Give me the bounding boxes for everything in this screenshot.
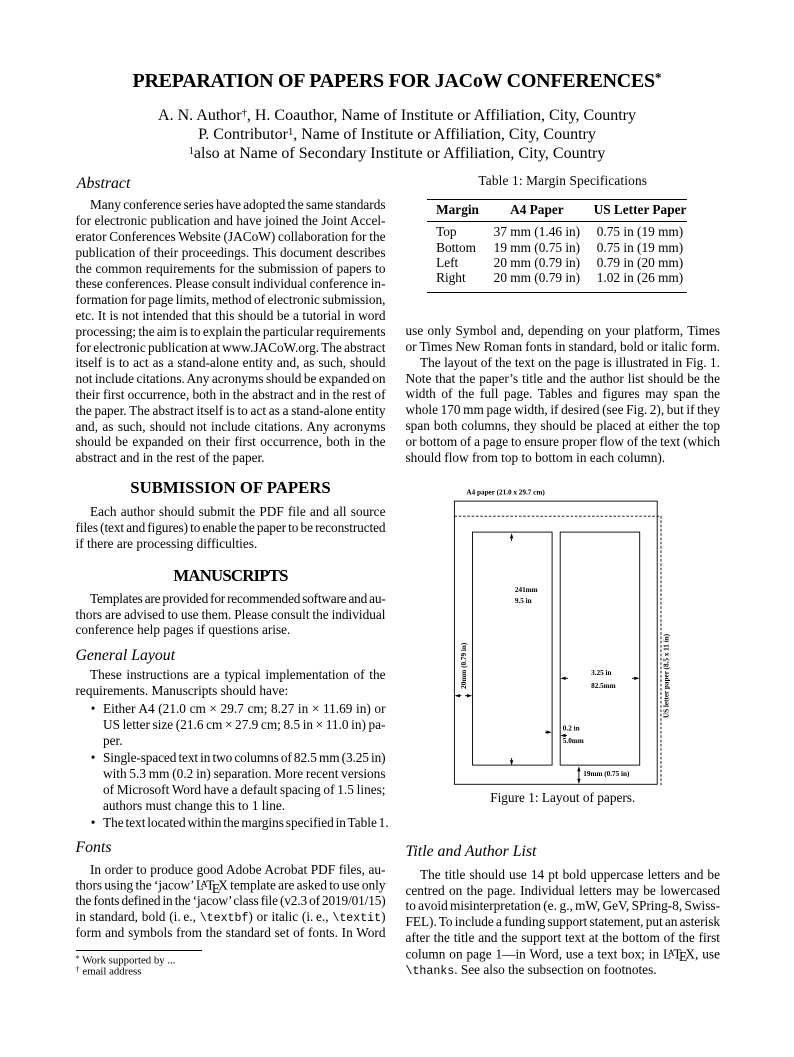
svg-text:82.5mm: 82.5mm (591, 682, 616, 690)
svg-text:19mm (0.75 in): 19mm (0.75 in) (583, 770, 630, 778)
svg-text:241mm: 241mm (515, 586, 538, 594)
svg-text:20mm (0.79 in): 20mm (0.79 in) (460, 642, 468, 689)
svg-text:0.2 in: 0.2 in (563, 724, 580, 732)
svg-text:9.5 in: 9.5 in (515, 597, 532, 605)
svg-text:US letter paper (8.5 x 11 in): US letter paper (8.5 x 11 in) (663, 633, 671, 718)
svg-text:3.25 in: 3.25 in (591, 669, 611, 677)
svg-text:A4 paper (21.0 x 29.7 cm): A4 paper (21.0 x 29.7 cm) (466, 488, 545, 496)
svg-text:5.0mm: 5.0mm (563, 737, 584, 745)
